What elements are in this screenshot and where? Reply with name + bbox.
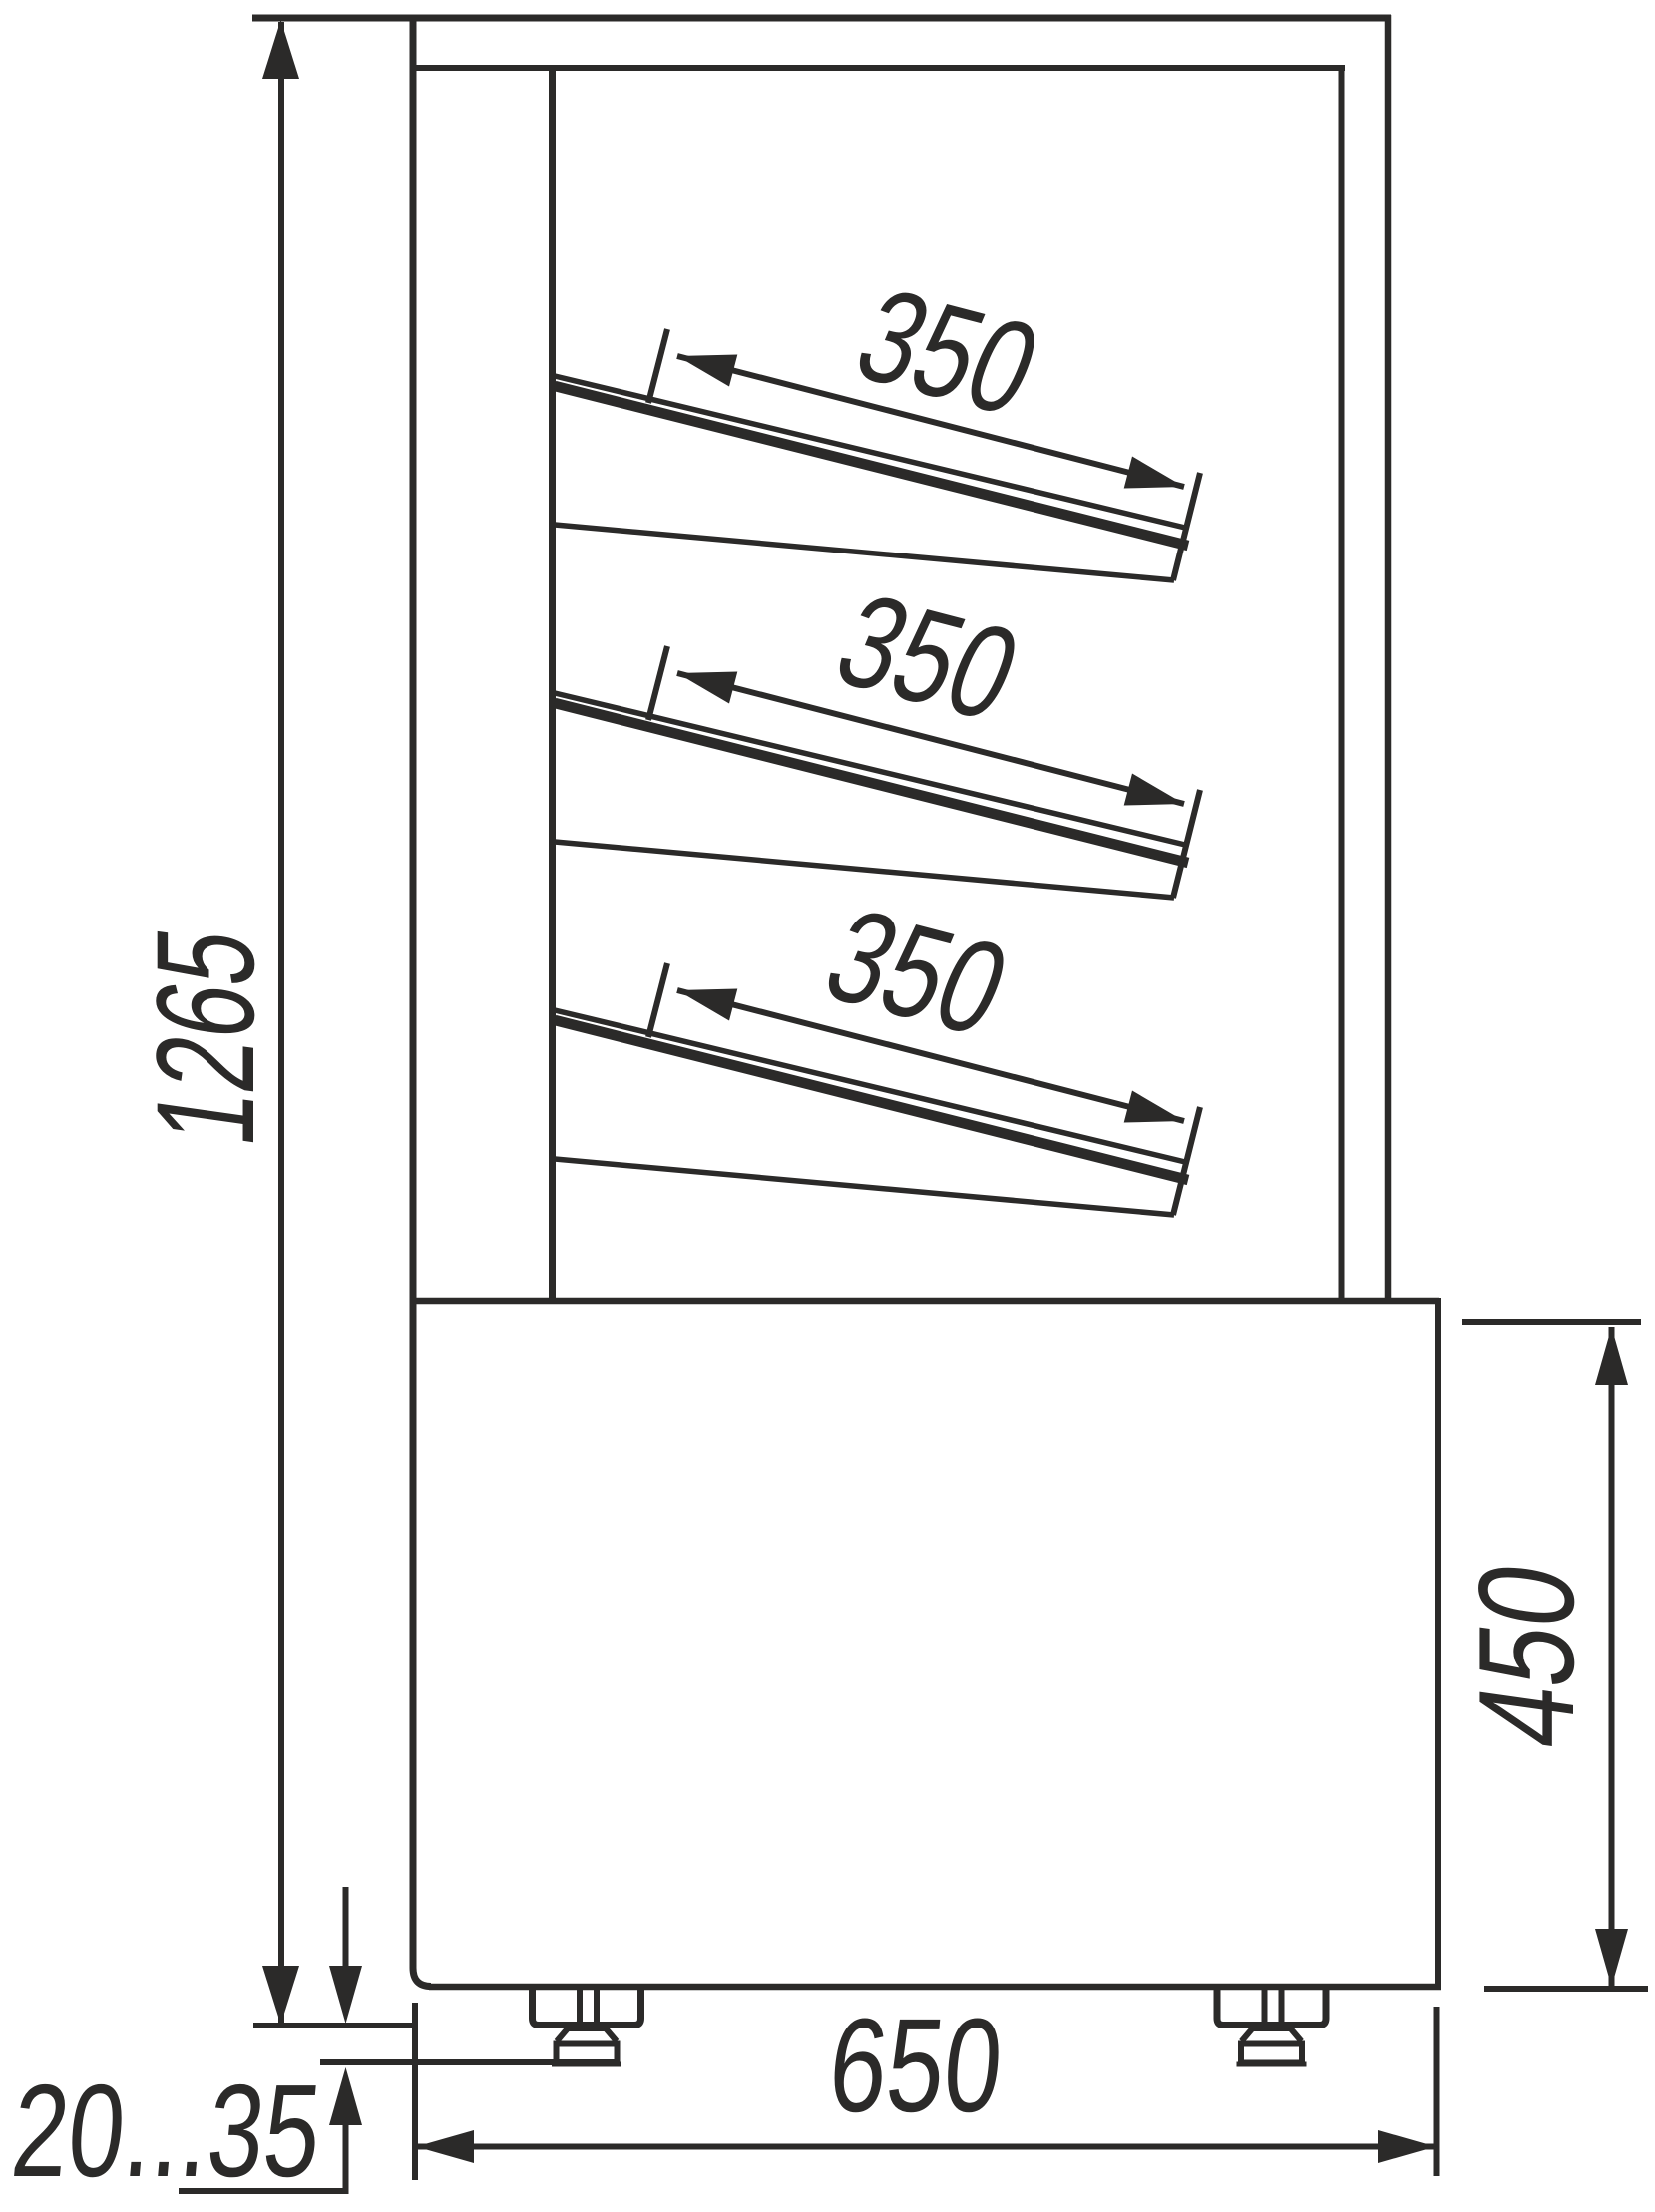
svg-text:20...35: 20...35: [6, 2057, 326, 2205]
svg-text:1265: 1265: [128, 920, 283, 1154]
svg-text:650: 650: [823, 1991, 1008, 2140]
svg-text:450: 450: [1450, 1554, 1602, 1755]
